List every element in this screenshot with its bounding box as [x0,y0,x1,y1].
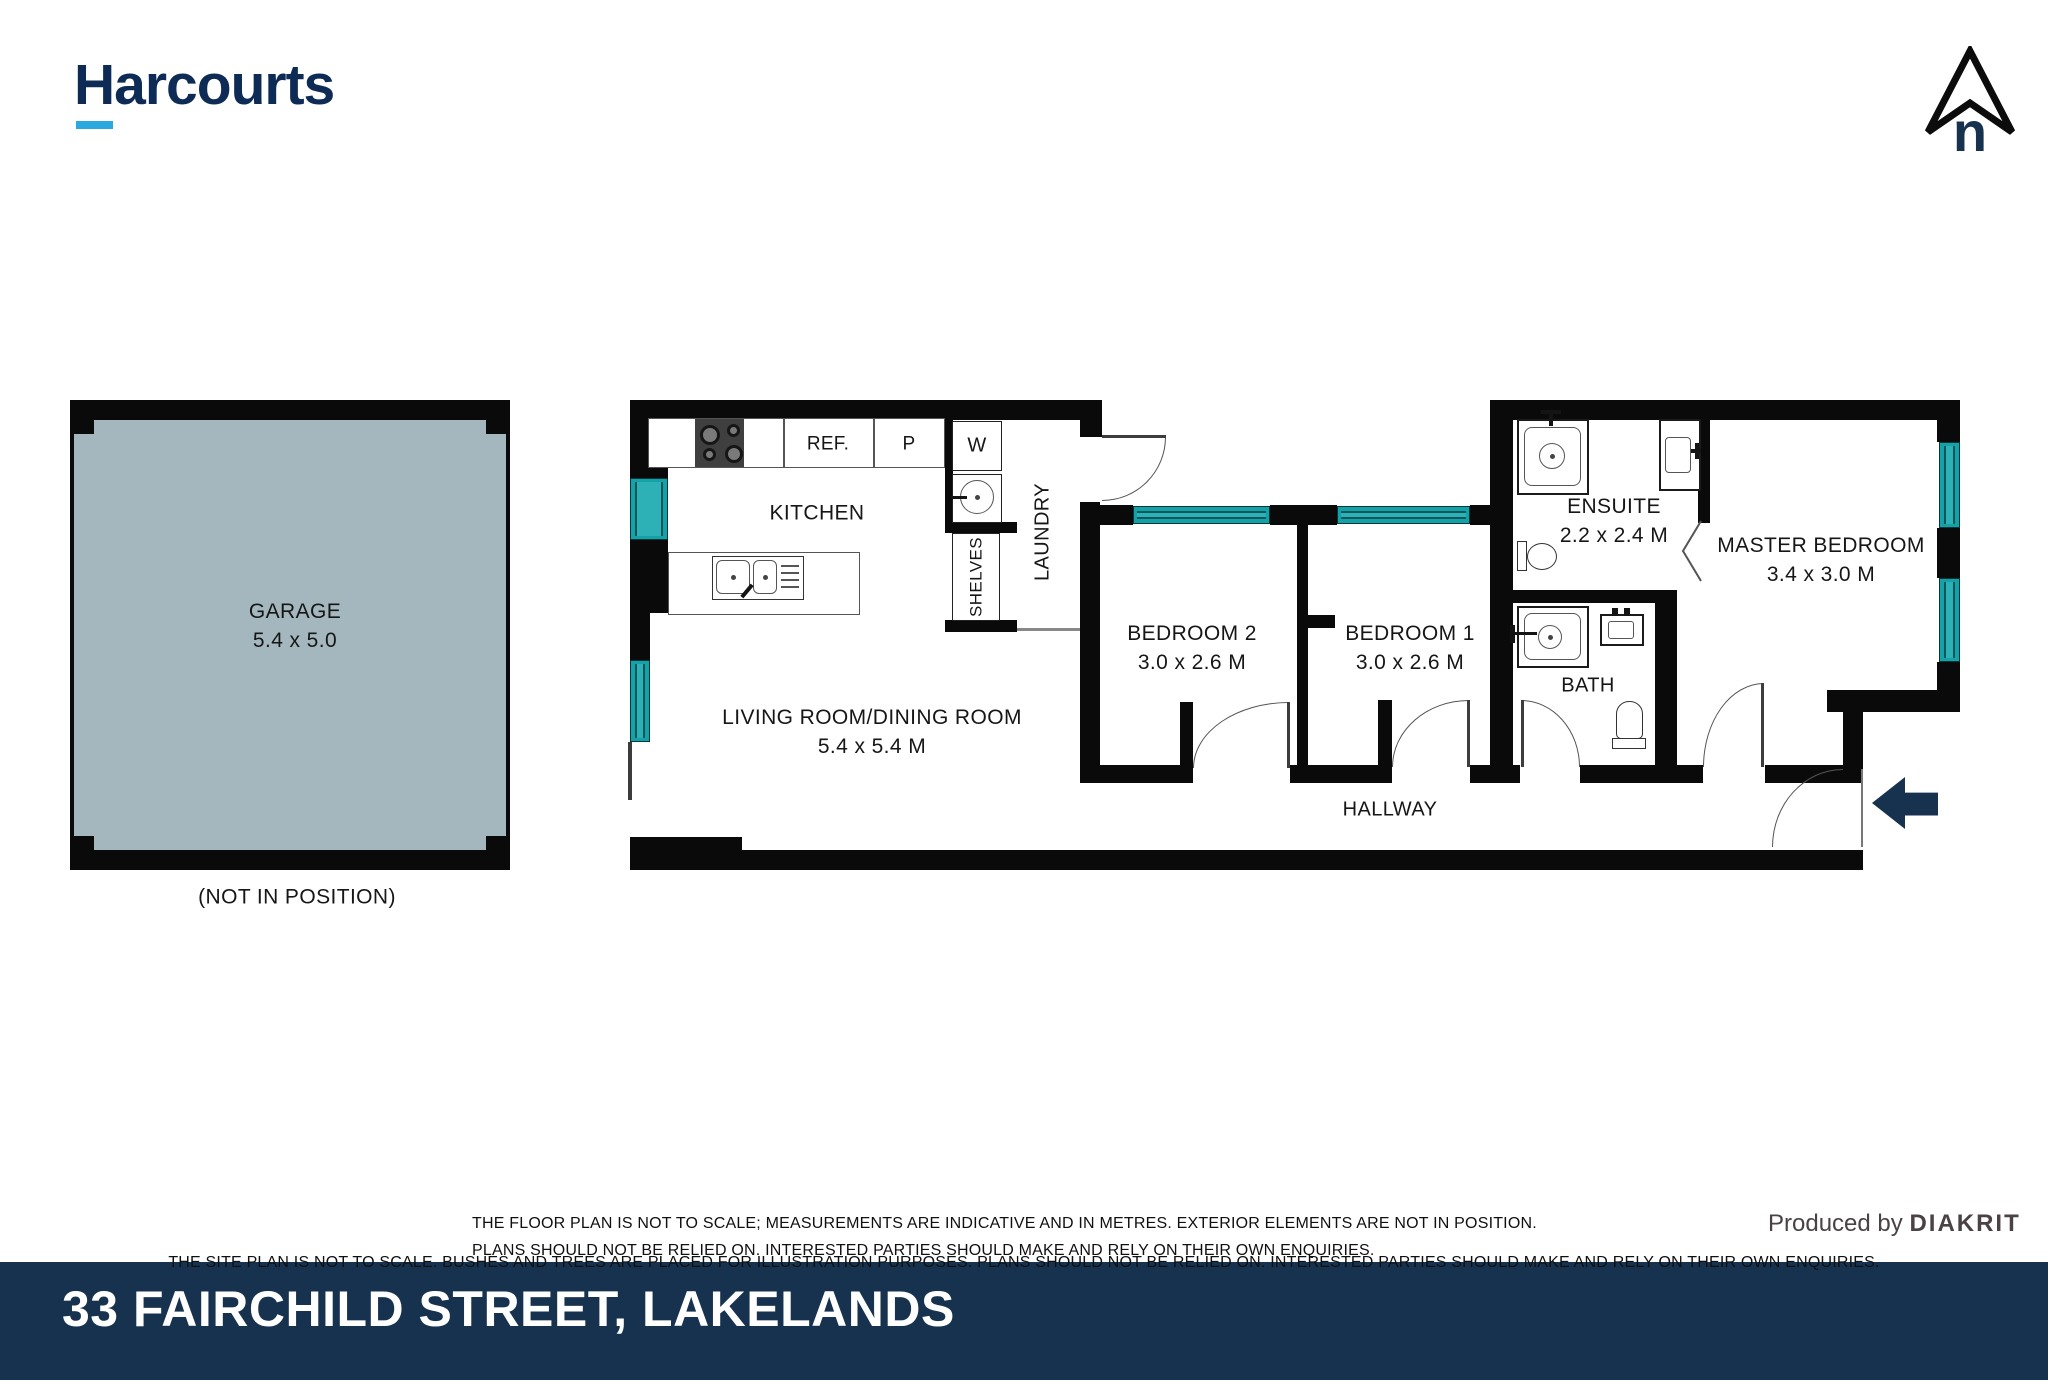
room-label-bedroom1: BEDROOM 13.0 x 2.6 M [1345,619,1475,677]
wall-living-left-thin [628,742,632,800]
door-leaf-bedroom1 [1467,700,1470,767]
room-label-bath: BATH [1561,672,1614,701]
wall-hall-c [1470,765,1520,783]
wall-bath-master [1655,590,1677,783]
diakrit-brand: DIAKRIT [1909,1210,2020,1237]
room-label-garage: GARAGE 5.4 x 5.0 [249,597,341,655]
counter-divider [873,418,875,468]
bath-vanity-tap-icon [1624,608,1630,616]
shower-tap-icon [1541,410,1561,414]
door-arc-bedroom2 [1193,702,1289,768]
laundry-tub [952,474,1002,523]
door-leaf-bath [1521,700,1524,767]
tub-tap-icon [951,496,967,499]
garage-wall-top [70,400,510,420]
wall-shelves-bottom-bar [945,620,1017,632]
wall-living-left [630,613,650,660]
garage-corner-post [486,836,510,870]
window-bedroom1 [1337,506,1470,524]
wall-entry-upper [1843,712,1863,769]
floor-plan-page: Harcourts n GARAGE 5.4 x 5.0 (NOT IN POS… [0,0,2048,1380]
room-label-hallway: HALLWAY [1343,796,1438,825]
window-living [630,660,650,742]
washer-label: W [967,432,986,461]
bath-toilet-bowl [1616,701,1643,739]
door-arc-bath [1521,700,1580,767]
garage-wall-left [70,420,74,850]
door-arc-laundry [1102,437,1166,501]
garage-corner-post [70,400,94,434]
shelves-label: SHELVES [962,537,991,617]
garage-corner-post [486,400,510,434]
entry-arrow-icon [1872,777,1938,829]
wall-bottom-step [630,837,742,850]
window-master-upper [1939,442,1960,528]
window-master-lower [1939,578,1960,662]
entry-opening-edge [1861,769,1863,847]
produced-by: Produced by DIAKRIT [1768,1210,2021,1238]
wall-bed2-bed1-separator [1297,523,1308,765]
wall-ensuite-bath [1513,590,1677,603]
garage-wall-right [506,420,510,850]
garage-wall-bottom [70,850,510,870]
kitchen-counter [648,418,945,468]
wall-hall-a [1080,765,1180,783]
bath-shower-arm-icon [1513,632,1537,635]
disclaimer-line1: THE FLOOR PLAN IS NOT TO SCALE; MEASUREM… [472,1210,1537,1237]
bath-shower [1517,606,1589,668]
garage-note: (NOT IN POSITION) [198,883,396,912]
room-label-bedroom2: BEDROOM 23.0 x 2.6 M [1127,619,1257,677]
kitchen-sink-unit [712,556,804,600]
wall-master-bottom [1827,690,1960,712]
ensuite-toilet-tank [1517,541,1527,571]
door-leaf-master [1761,683,1764,767]
wall-right-top [1937,400,1960,442]
wall-bed2-door-stub [1180,702,1193,783]
shower-tap-icon [1549,412,1553,426]
door-leaf-laundry [1102,435,1166,438]
room-label-master: MASTER BEDROOM3.4 x 3.0 M [1717,531,1924,589]
bath-vanity [1600,614,1644,646]
bath-vanity-tap-icon [1612,608,1618,616]
vanity-tap-icon [1695,443,1699,459]
wall-bed-front-b [1270,505,1337,525]
property-address: 33 FAIRCHILD STREET, LAKELANDS [62,1280,955,1338]
room-label-kitchen: KITCHEN [770,499,865,528]
wall-bed1-door-stub [1378,700,1392,783]
garage-corner-post [70,836,94,870]
disclaimer-siteplan: THE SITE PLAN IS NOT TO SCALE. BUSHES AN… [0,1254,2048,1272]
wall-hall-b [1290,765,1392,783]
wall-separator-nib [1308,615,1335,628]
wall-right-mid [1937,528,1960,578]
door-leaf-bedroom2 [1287,702,1290,768]
ensuite-vanity [1659,419,1701,491]
ensuite-shower [1517,419,1589,495]
bath-shower-tap-icon [1510,625,1515,643]
harcourts-logo: Harcourts [74,52,334,118]
counter-divider [783,418,785,468]
wall-shelves-top-bar [945,522,1017,533]
logo-underline [76,121,113,129]
bath-toilet-tank [1612,738,1646,749]
wall-top-left-section [630,400,1102,420]
fridge-label: REF. [807,430,849,459]
pantry-label: P [903,430,916,459]
door-arc-master [1703,683,1764,767]
window-bedroom2 [1133,506,1270,524]
door-ensuite-ajar [1679,519,1705,583]
room-label-ensuite: ENSUITE2.2 x 2.4 M [1560,492,1668,550]
laundry-threshold-line [1017,628,1080,631]
wall-kitchen-left-lower [630,540,668,613]
door-arc-bedroom1 [1392,700,1469,767]
wall-laundry-corner [1080,415,1102,437]
wall-bedroom2-left [1080,502,1100,783]
wall-bottom [630,850,1863,870]
room-label-laundry: LAUNDRY [1029,483,1058,581]
window-kitchen [630,478,668,540]
north-label: n [1944,102,1996,166]
room-label-living: LIVING ROOM/DINING ROOM5.4 x 5.4 M [722,703,1022,761]
wall-hall-d [1580,765,1703,783]
wall-bedroom1-right [1490,420,1513,783]
stove-cooktop-icon [695,419,744,467]
ensuite-toilet-bowl [1527,543,1557,570]
